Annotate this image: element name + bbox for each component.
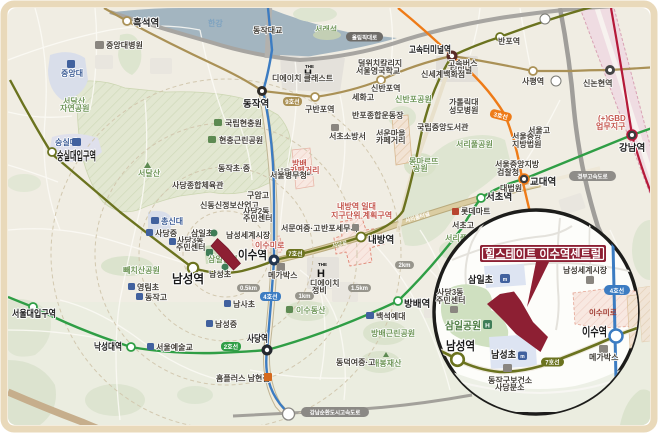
svg-text:사당종합체육관: 사당종합체육관: [172, 180, 224, 190]
svg-text:남성세계시장: 남성세계시장: [226, 230, 271, 240]
svg-text:2km: 2km: [398, 263, 410, 269]
svg-text:강남순환도시고속도로: 강남순환도시고속도로: [310, 409, 361, 417]
svg-text:구암고: 구암고: [247, 190, 270, 200]
svg-text:세화고: 세화고: [352, 92, 375, 102]
svg-text:서리풀공원: 서리풀공원: [456, 139, 493, 149]
svg-text:이수미로: 이수미로: [255, 240, 285, 250]
svg-text:남성역: 남성역: [446, 338, 475, 353]
svg-text:THE: THE: [318, 262, 327, 267]
svg-text:영림초: 영림초: [137, 282, 160, 292]
svg-text:힐스테이트 이수역센트럴: 힐스테이트 이수역센트럴: [485, 247, 601, 262]
svg-text:빼치산공원: 빼치산공원: [123, 265, 160, 275]
svg-text:한강: 한강: [208, 18, 223, 28]
svg-text:m: m: [520, 354, 525, 360]
svg-text:신반포역: 신반포역: [371, 83, 400, 93]
svg-text:m: m: [503, 277, 508, 283]
svg-text:대법원: 대법원: [500, 183, 522, 193]
svg-text:삼일공원: 삼일공원: [445, 319, 481, 332]
svg-text:반포역: 반포역: [498, 36, 520, 46]
svg-text:신논현역: 신논현역: [583, 78, 612, 88]
svg-text:남성초: 남성초: [491, 349, 516, 361]
svg-text:4호선: 4호선: [610, 287, 624, 295]
svg-text:이수동산: 이수동산: [296, 305, 326, 315]
svg-text:강남역: 강남역: [619, 142, 645, 154]
svg-text:국립중앙도서관: 국립중앙도서관: [417, 122, 469, 132]
svg-text:서울고: 서울고: [528, 125, 551, 135]
svg-text:삼일초: 삼일초: [191, 228, 214, 238]
svg-text:2호선: 2호선: [224, 343, 238, 351]
svg-text:남성초: 남성초: [209, 269, 232, 279]
svg-text:정비: 정비: [312, 285, 327, 295]
svg-text:신반포공원: 신반포공원: [395, 94, 432, 104]
svg-text:이수역: 이수역: [582, 324, 607, 339]
svg-text:교대역: 교대역: [530, 176, 556, 188]
svg-text:이수미로: 이수미로: [589, 307, 617, 317]
svg-text:성모병원: 성모병원: [449, 105, 478, 115]
svg-text:총신대: 총신대: [161, 216, 183, 226]
svg-text:주민센터: 주민센터: [436, 295, 465, 305]
svg-text:사당분소: 사당분소: [495, 382, 525, 392]
svg-text:동작초·중: 동작초·중: [218, 163, 251, 173]
svg-text:숭실대입구역: 숭실대입구역: [57, 148, 96, 163]
svg-text:구반포역: 구반포역: [305, 104, 334, 114]
svg-text:지구단위 계획구역: 지구단위 계획구역: [331, 210, 392, 220]
svg-text:주민센터: 주민센터: [176, 242, 205, 252]
svg-text:1km: 1km: [298, 294, 310, 300]
svg-text:메가박스: 메가박스: [589, 352, 619, 362]
svg-text:중앙대병원: 중앙대병원: [106, 40, 143, 50]
svg-text:서울예술교: 서울예술교: [156, 342, 193, 352]
svg-text:서울대입구역: 서울대입구역: [12, 308, 56, 320]
svg-text:자연공원: 자연공원: [60, 103, 89, 113]
svg-text:현충근린공원: 현충근린공원: [219, 135, 263, 145]
svg-text:남사초: 남사초: [233, 299, 256, 309]
svg-text:카페거리: 카페거리: [376, 135, 405, 145]
svg-text:H: H: [485, 323, 490, 330]
svg-text:경부고속도로: 경부고속도로: [577, 173, 607, 181]
svg-text:9호선: 9호선: [285, 98, 299, 106]
svg-text:서달산: 서달산: [138, 168, 161, 178]
svg-text:홈플러스 남현점: 홈플러스 남현점: [216, 373, 270, 383]
svg-text:업무지구: 업무지구: [596, 121, 626, 131]
svg-text:주민센터: 주민센터: [243, 213, 272, 223]
svg-text:디에이치 클래스트: 디에이치 클래스트: [272, 73, 334, 83]
svg-text:남성중: 남성중: [215, 319, 238, 329]
svg-text:올림픽대로: 올림픽대로: [352, 34, 377, 42]
svg-text:4호선: 4호선: [263, 293, 277, 301]
svg-text:지방법원: 지방법원: [512, 139, 541, 149]
svg-text:7호선: 7호선: [545, 359, 559, 367]
svg-text:공원: 공원: [413, 163, 428, 173]
svg-text:내방역 일대: 내방역 일대: [337, 201, 376, 211]
svg-text:동덕여중·고: 동덕여중·고: [336, 357, 376, 367]
svg-text:서초고: 서초고: [452, 220, 475, 230]
svg-text:서울병무청: 서울병무청: [270, 170, 307, 180]
svg-text:사당중: 사당중: [155, 228, 178, 238]
svg-text:7호선: 7호선: [288, 250, 302, 258]
svg-text:삼일초: 삼일초: [468, 274, 493, 286]
svg-text:낙성대역: 낙성대역: [94, 341, 122, 353]
svg-text:동작역: 동작역: [243, 98, 269, 110]
svg-text:방배역: 방배역: [404, 298, 430, 310]
svg-text:메가박스: 메가박스: [268, 270, 298, 280]
svg-text:방배근린공원: 방배근린공원: [371, 328, 415, 338]
svg-text:서초소방서: 서초소방서: [329, 131, 366, 141]
svg-text:반포종합운동장: 반포종합운동장: [352, 110, 404, 120]
svg-text:흑석역: 흑석역: [133, 17, 159, 29]
svg-text:내방역: 내방역: [368, 234, 394, 246]
svg-text:사당역: 사당역: [247, 333, 268, 345]
svg-text:고속터미널역: 고속터미널역: [409, 44, 451, 56]
svg-text:국립현충원: 국립현충원: [225, 118, 262, 128]
svg-text:사평역: 사평역: [522, 76, 544, 86]
svg-text:동작고: 동작고: [145, 292, 168, 302]
svg-text:남성역: 남성역: [172, 271, 204, 286]
svg-text:1.5km: 1.5km: [351, 286, 368, 292]
svg-text:신세계백화점: 신세계백화점: [421, 69, 465, 79]
svg-text:검찰청: 검찰청: [497, 167, 519, 177]
svg-text:중앙대: 중앙대: [61, 68, 83, 78]
svg-text:매봉재산: 매봉재산: [372, 358, 402, 368]
svg-text:남성세계시장: 남성세계시장: [563, 265, 608, 275]
svg-text:0.5km: 0.5km: [240, 286, 257, 292]
svg-text:서울영국학교: 서울영국학교: [356, 66, 401, 76]
svg-text:백석예대: 백석예대: [376, 311, 405, 321]
svg-text:롯데마트: 롯데마트: [461, 206, 491, 216]
svg-text:서문여중·고: 서문여중·고: [281, 223, 321, 233]
svg-text:동작대교: 동작대교: [253, 25, 283, 35]
